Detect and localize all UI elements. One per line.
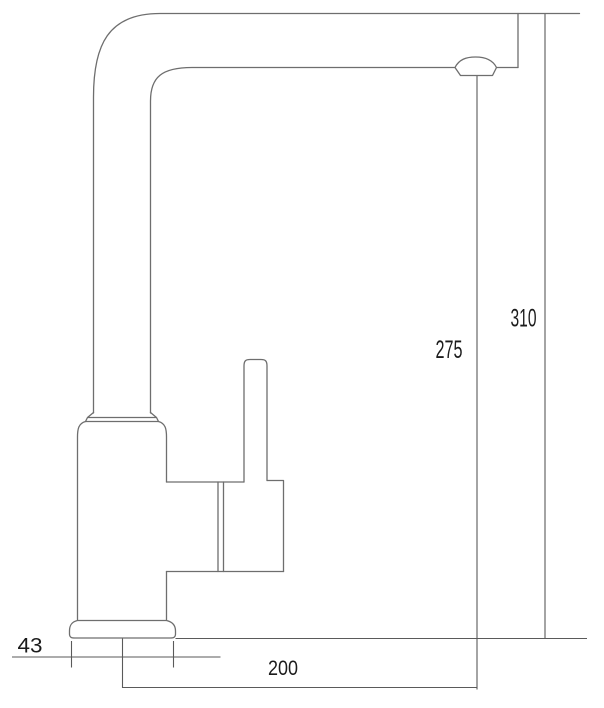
lever-handle <box>244 360 267 483</box>
base-width-label: 43 <box>18 635 43 658</box>
spout-height-label: 275 <box>436 336 463 364</box>
spout-inner-profile <box>151 68 456 414</box>
spout-outer-profile <box>94 14 580 414</box>
aerator-nozzle <box>455 57 497 76</box>
dimension-lines-group <box>12 14 587 690</box>
riser-collar <box>86 413 159 422</box>
faucet-technical-drawing: 43 200 275 310 <box>0 0 604 708</box>
handle-base-right-edge <box>267 481 284 572</box>
body-right-side-upper <box>159 422 167 483</box>
body-left-side <box>78 422 86 621</box>
faucet-outline-group <box>70 14 580 639</box>
spout-reach-label: 200 <box>268 657 298 680</box>
overall-height-label: 310 <box>511 305 537 333</box>
base-flange <box>70 621 176 639</box>
handle-base-joint-seam <box>218 482 224 572</box>
drawing-canvas: 43 200 275 310 <box>0 0 604 708</box>
